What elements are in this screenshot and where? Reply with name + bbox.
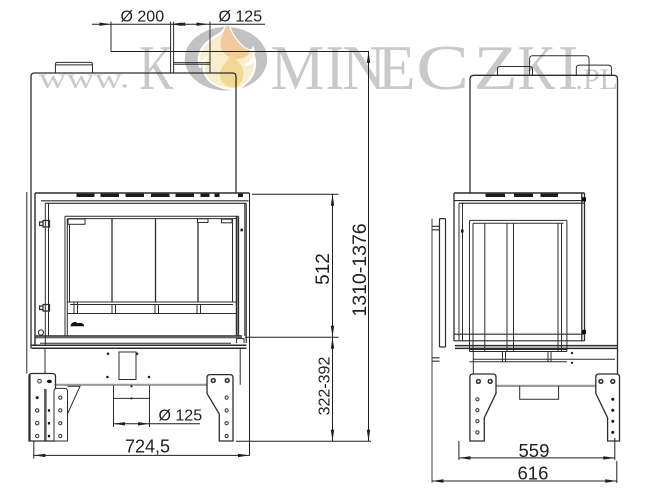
svg-text:559: 559 (519, 440, 550, 461)
svg-text:616: 616 (518, 463, 549, 484)
svg-text:Ø 200: Ø 200 (121, 9, 165, 26)
svg-text:C: C (416, 32, 469, 103)
svg-text:Ø 125: Ø 125 (159, 408, 203, 425)
svg-text:K: K (518, 32, 556, 103)
svg-text:Ø 125: Ø 125 (219, 9, 263, 26)
svg-text:E: E (378, 32, 416, 103)
svg-text:Z: Z (474, 32, 518, 103)
svg-text:724,5: 724,5 (125, 437, 170, 457)
svg-text:M: M (271, 32, 325, 103)
svg-text:512: 512 (313, 253, 334, 285)
svg-text:K: K (139, 32, 173, 103)
svg-text:322-392: 322-392 (317, 357, 334, 416)
svg-text:1310-1376: 1310-1376 (349, 223, 371, 316)
svg-text:www.: www. (39, 64, 130, 95)
